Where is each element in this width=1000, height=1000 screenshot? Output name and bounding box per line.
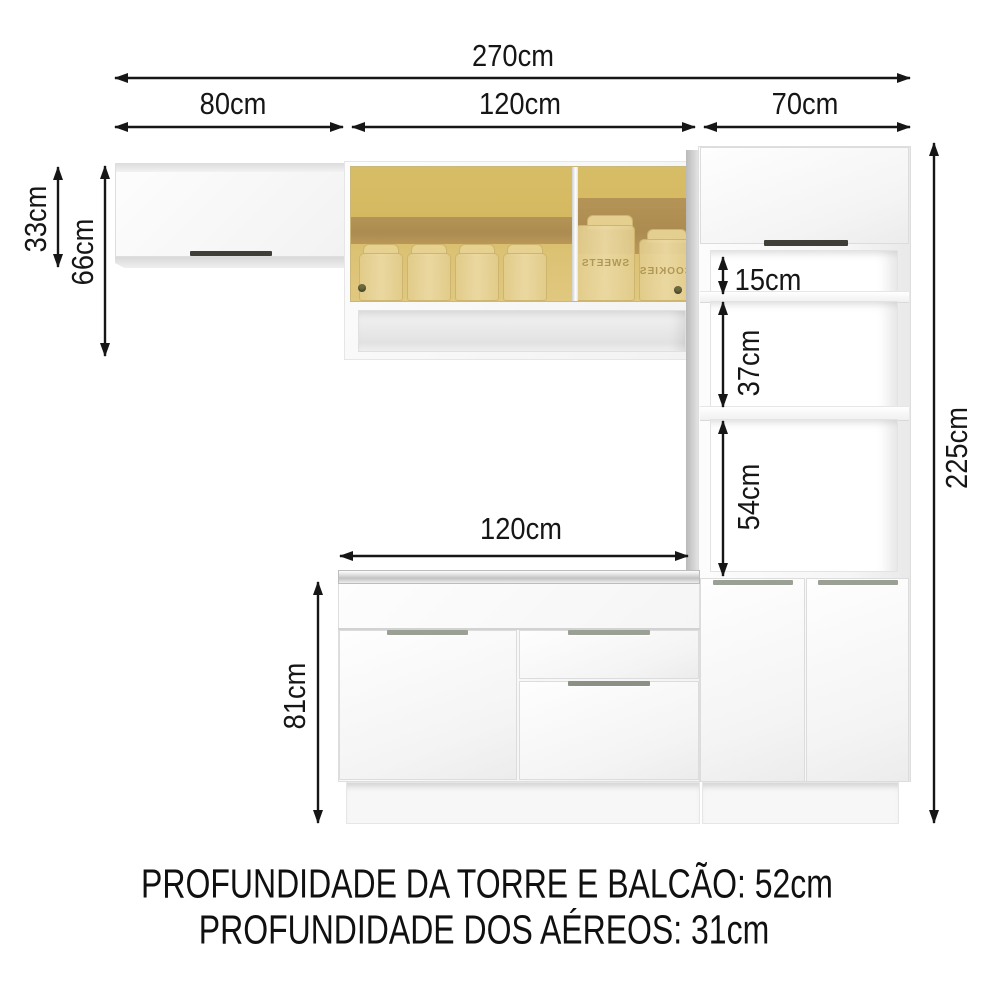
left-wall-cabinet-underside [115, 257, 350, 268]
left-wall-cabinet-top-edge [116, 164, 349, 172]
counter-drawer-handle [568, 630, 650, 635]
tower-top-door [700, 147, 909, 244]
dim-label-total-width: 270cm [472, 38, 554, 74]
glass-door-knob-right [674, 286, 682, 294]
tower-bottom-door-right-handle [818, 580, 898, 585]
tower-bottom-door-right [806, 578, 909, 782]
glass-door-divider [572, 167, 578, 301]
dim-label-33: 33cm [18, 186, 54, 253]
glass-wall-cabinet-glass: SWEETS COOKIES [350, 166, 691, 302]
footer-depth-tower-counter: PROFUNDIDADE DA TORRE E BALCÃO: 52cm [141, 861, 833, 908]
left-wall-cabinet-handle [190, 251, 272, 256]
counter-plinth [346, 782, 700, 824]
left-wall-cabinet [115, 163, 350, 257]
tower-bottom-door-left-handle [713, 580, 793, 585]
tower-bottom-door-left [700, 578, 805, 782]
glass-cabinet-open-shelf [358, 310, 686, 352]
dim-label-aereo-glass: 120cm [479, 86, 561, 122]
tower-top-door-handle [764, 240, 848, 246]
counter-open-top [338, 570, 700, 584]
kitchen-dimension-diagram: SWEETS COOKIES [0, 0, 1000, 1000]
dim-label-54: 54cm [731, 464, 767, 531]
dim-label-37: 37cm [731, 330, 767, 397]
counter-door-left [339, 630, 517, 780]
counter-lower-drawer [519, 681, 699, 780]
counter-drawer [519, 630, 699, 679]
dim-label-counter-width: 120cm [480, 511, 562, 547]
dim-label-aereo-left: 80cm [200, 86, 267, 122]
tower-plinth [702, 782, 899, 824]
glass-tint [351, 167, 690, 301]
counter-lower-drawer-handle [568, 681, 650, 686]
dim-label-counter-height: 81cm [277, 663, 313, 730]
dim-label-15: 15cm [735, 262, 802, 298]
footer-depth-aereos: PROFUNDIDADE DOS AÉREOS: 31cm [199, 907, 769, 954]
glass-door-knob-left [358, 284, 366, 292]
dim-label-66: 66cm [65, 219, 101, 286]
counter-door-left-handle [387, 630, 468, 635]
dim-label-tower-width: 70cm [772, 86, 839, 122]
dim-label-total-height: 225cm [939, 407, 975, 489]
